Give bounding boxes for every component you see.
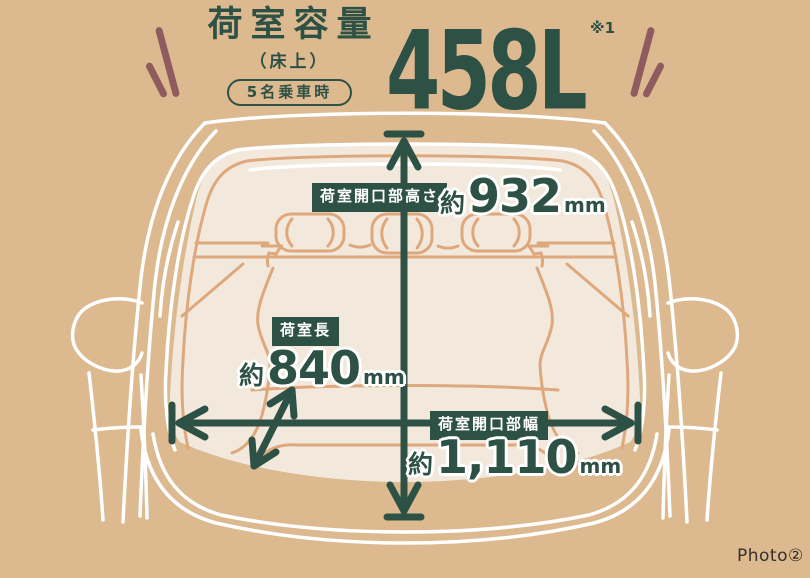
cargo-capacity-infographic: 荷室容量 （床上） 5名乗車時 458L ※1 荷室開口部高さ 約 932 mm…	[0, 0, 810, 578]
cargo-length-unit: mm	[363, 365, 405, 389]
opening-height-approx: 約	[440, 184, 465, 220]
condition-badge: 5名乗車時	[227, 79, 352, 106]
opening-height-value: 約 932 mm	[440, 172, 606, 220]
cargo-length-number: 840	[267, 344, 360, 392]
opening-height-label-badge: 荷室開口部高さ	[312, 183, 447, 212]
opening-height-number: 932	[468, 172, 561, 220]
page-title: 荷室容量	[167, 6, 412, 45]
capacity-value: 458L	[386, 16, 584, 125]
header: 荷室容量 （床上） 5名乗車時	[167, 6, 412, 106]
opening-width-unit: mm	[580, 454, 622, 478]
opening-height-unit: mm	[564, 193, 606, 217]
cargo-length-approx: 約	[239, 356, 264, 392]
footnote-mark: ※1	[590, 19, 615, 37]
opening-width-value: 約 1,110 mm	[408, 433, 621, 481]
photo-reference-label: Photo②	[737, 546, 804, 566]
opening-width-approx: 約	[408, 445, 433, 481]
opening-width-number: 1,110	[436, 433, 577, 481]
cargo-length-value: 約 840 mm	[239, 344, 405, 392]
page-subtitle: （床上）	[167, 47, 412, 72]
